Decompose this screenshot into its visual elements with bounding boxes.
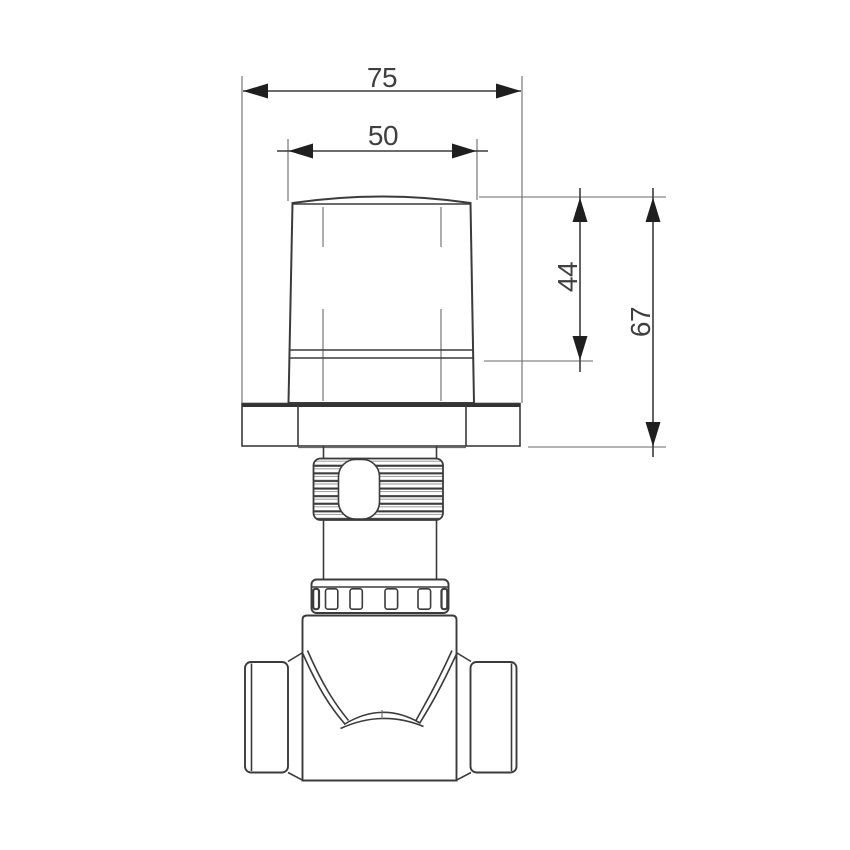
collar-notch [313, 589, 319, 609]
dim-label-overall-width: 75 [367, 62, 397, 93]
valve-technical-drawing: 75 50 44 [0, 0, 850, 850]
arrow-down [573, 336, 588, 361]
arrow-right [452, 144, 477, 159]
dim-label-handle-height: 44 [552, 262, 583, 292]
collar-notch [418, 589, 431, 609]
pipe-connection-right [471, 662, 517, 773]
drawing-canvas: 75 50 44 [0, 0, 850, 850]
dim-handle-width: 50 [277, 120, 488, 201]
union-nut [312, 580, 449, 614]
arrow-left [289, 144, 314, 159]
dim-handle-height: 44 [479, 188, 666, 372]
arrow-right [496, 84, 521, 99]
valve-body [245, 616, 517, 781]
arrow-down [646, 422, 661, 447]
collar-notch [385, 589, 398, 609]
collar-notch [350, 589, 362, 609]
collar-notch [326, 589, 338, 609]
dim-label-handle-width: 50 [368, 120, 398, 151]
threaded-stem [314, 446, 444, 580]
arrow-up [573, 198, 588, 223]
collar-notch [442, 589, 448, 609]
flange-outline [242, 404, 520, 447]
wall-flange [242, 404, 520, 448]
arrow-up [646, 198, 661, 223]
dim-total-height: 67 [528, 188, 666, 457]
handle-outline [289, 197, 475, 404]
valve-handle [289, 197, 475, 404]
thread-runout-flat [339, 460, 380, 520]
dim-label-total-height: 67 [625, 307, 656, 337]
pipe-connection-left [245, 662, 288, 773]
arrow-left [243, 84, 268, 99]
